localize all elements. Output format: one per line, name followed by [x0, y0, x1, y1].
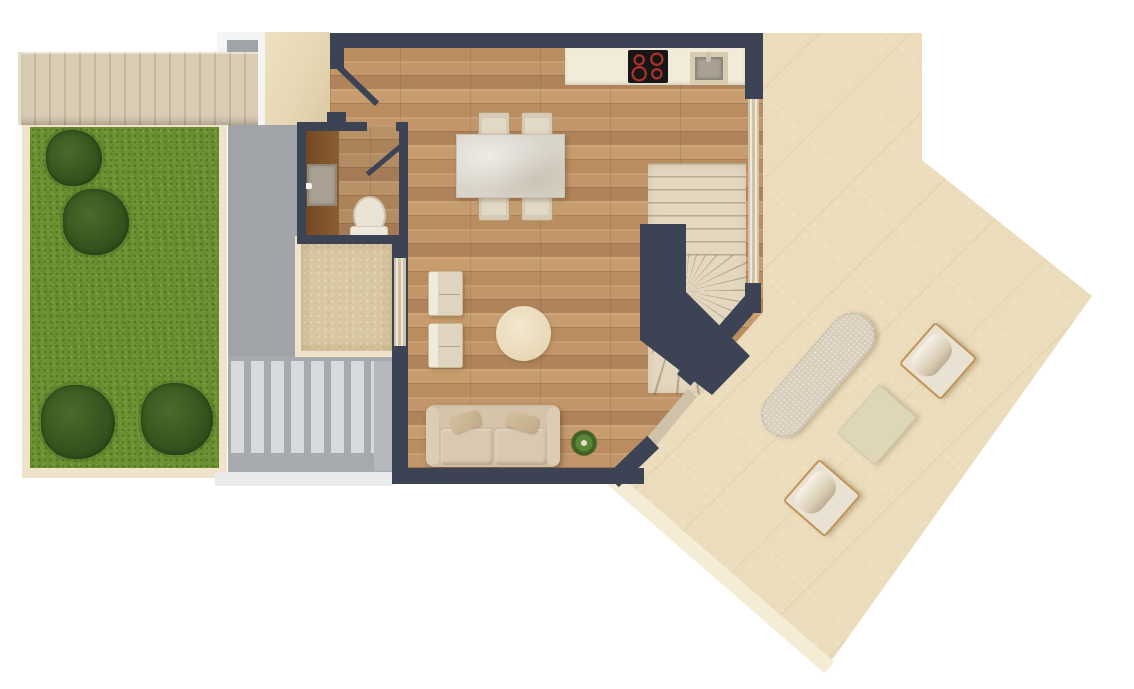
garden-bush — [41, 385, 115, 459]
sofa-seat-cushion — [495, 429, 547, 465]
kitchen-faucet — [706, 52, 711, 62]
garden-bush — [63, 189, 129, 255]
sofa-seat-cushion — [441, 429, 493, 465]
wall-south — [392, 468, 644, 484]
armchair — [428, 271, 463, 316]
patio-court — [301, 242, 392, 351]
floor-plan-canvas — [0, 0, 1134, 689]
paving-light-edge — [374, 361, 393, 471]
sofa-arm — [547, 407, 560, 465]
exterior-step-strip — [215, 472, 393, 486]
potted-plant — [570, 429, 598, 457]
wall-north — [330, 33, 763, 48]
sofa — [426, 405, 560, 467]
garden-bush — [141, 383, 213, 455]
glass-door-east — [748, 99, 759, 284]
dining-table — [456, 134, 565, 198]
bathroom-wall-left — [297, 122, 306, 244]
round-rug — [496, 306, 551, 361]
sofa-arm — [426, 407, 439, 465]
deck-slat-steps — [231, 361, 374, 453]
cooktop — [628, 50, 668, 83]
exterior-staircase — [18, 52, 261, 125]
entry-landing — [265, 32, 331, 133]
wall-east-upper — [745, 33, 763, 99]
wall-east-lower — [745, 283, 761, 313]
garden-bush — [46, 130, 102, 186]
side-paving-column — [228, 125, 301, 368]
bathroom-wall-top — [297, 122, 367, 131]
armchair — [428, 323, 463, 368]
bathroom-wall-right — [399, 122, 408, 244]
window-west — [394, 258, 406, 346]
